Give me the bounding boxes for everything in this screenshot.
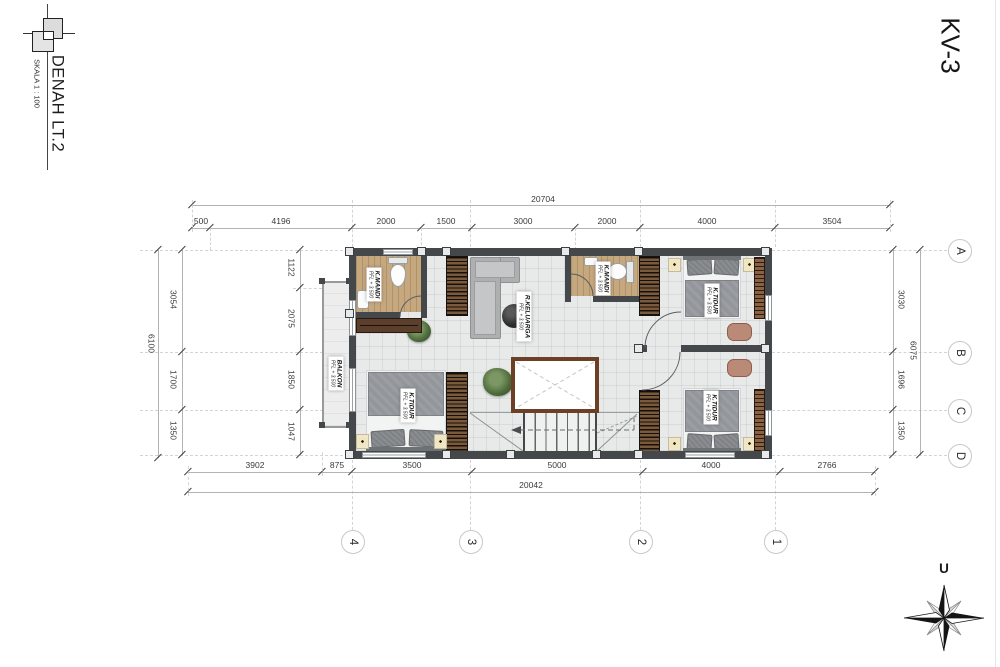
wall-bath-mid-side (565, 256, 571, 296)
gridline-col3-top (470, 200, 471, 247)
room-label-bed-left: K.TIDURPFL + 3.500 (401, 384, 416, 428)
gridline-col4-top (352, 200, 353, 247)
gridline-col2-top (640, 200, 641, 247)
floorplan-sheet: DENAH LT.2 SKALA 1 : 100 KV-3 20704 500 … (0, 0, 1000, 667)
sheet-scale: SKALA 1 : 100 (33, 54, 42, 114)
lamp (747, 262, 752, 267)
room-name: K.TIDUR (710, 394, 718, 421)
grid-bubble-C: C (948, 399, 972, 423)
toilet-bowl (608, 263, 627, 280)
grid-label: C (954, 407, 966, 415)
room-label-balcony: BALKONPFL + 3.500 (329, 352, 344, 396)
window (765, 410, 772, 436)
wardrobe-hatch (446, 256, 468, 316)
lamp (672, 441, 677, 446)
stair-treads (523, 413, 597, 452)
gridline-rowC-left (140, 410, 348, 411)
dim-right-seg: 1696 (897, 363, 906, 397)
dim-bottom-seg: 3902 (235, 461, 275, 470)
sheet-edge-line (995, 0, 996, 667)
desk (754, 389, 765, 451)
dim-bottom-seg: 875 (317, 461, 357, 470)
gridline-col2-bottom (640, 460, 641, 530)
wardrobe-rod (360, 325, 418, 326)
room-name: R.KELUARGA (523, 295, 531, 338)
room-level: PFL + 3.500 (402, 392, 408, 419)
column-post (442, 247, 451, 256)
lamp (360, 439, 365, 444)
dim-right-total: 6075 (909, 334, 918, 368)
ext-stub (575, 228, 576, 250)
room-name: K.TIDUR (407, 392, 415, 419)
window (362, 452, 426, 458)
room-level: PFL + 3.500 (368, 271, 374, 299)
chair (727, 323, 752, 341)
pillow (370, 429, 405, 448)
dim-left-inner-seg: 1122 (287, 251, 296, 285)
dim-left-total: 6100 (147, 327, 156, 361)
balcony-post (319, 422, 325, 428)
column-post (634, 450, 643, 459)
lamp (438, 439, 443, 444)
room-label-bed-bot-right: K.TIDURPFL + 3.500 (704, 386, 719, 430)
dim-bottom-seg: 2766 (807, 461, 847, 470)
column-post (345, 247, 354, 256)
grid-bubble-A: A (948, 239, 972, 263)
compass-rose (904, 585, 984, 651)
ext-stub (192, 200, 193, 232)
dim-right-seg: 3030 (897, 283, 906, 317)
wardrobe-hatch (446, 372, 468, 452)
room-name: K.MANDI (373, 271, 381, 299)
dim-bottom-total: 20042 (511, 481, 551, 490)
pillow (713, 258, 739, 276)
room-name: K.MANDI (602, 265, 610, 293)
dim-left-inner-seg: 2075 (287, 302, 296, 336)
ext-stub (188, 466, 189, 496)
room-label-bed-top-right: K.TIDURPFL + 3.500 (705, 279, 720, 323)
grid-label: B (954, 349, 966, 357)
lamp (747, 441, 752, 446)
dim-top-seg: 500 (181, 217, 221, 226)
column-post (761, 450, 770, 459)
grid-bubble-B: B (948, 341, 972, 365)
toilet-tank (626, 261, 634, 283)
dim-top-seg: 1500 (426, 217, 466, 226)
north-label: U (936, 561, 952, 576)
grid-label: 2 (635, 539, 647, 545)
gridline-rowD-right (772, 455, 947, 456)
gridline-col1-bottom (775, 460, 776, 530)
column-post (592, 450, 601, 459)
lamp (672, 262, 677, 267)
grid-bubble-D: D (948, 444, 972, 468)
wardrobe-hatch (639, 256, 660, 316)
dim-top-total: 20704 (523, 195, 563, 204)
dim-top-seg: 2000 (587, 217, 627, 226)
column-post (634, 247, 643, 256)
sofa-cushion (475, 261, 515, 278)
logo-square-overlap (43, 31, 54, 40)
room-label-bath-left: K.MANDIPFL + 3.500 (367, 263, 382, 307)
dim-top-seg: 3000 (503, 217, 543, 226)
dim-left-seg: 3054 (169, 283, 178, 317)
column-post (634, 344, 643, 353)
sofa-cushion (474, 281, 496, 335)
gridline-rowA-left (140, 250, 348, 251)
grid-label: D (954, 452, 966, 460)
ext-stub (875, 466, 876, 496)
wall-bath-left-bottom (356, 312, 400, 318)
dim-line-left-total (158, 250, 159, 458)
room-name: BALKON (335, 360, 343, 388)
dim-left-seg: 1350 (169, 414, 178, 448)
column-post (345, 309, 354, 318)
dim-left-inner-seg: 1850 (287, 363, 296, 397)
pillow (686, 258, 712, 276)
room-label-bath-mid: K.MANDIPFL + 3.500 (596, 257, 611, 301)
wall-rowB-b (681, 345, 772, 352)
dim-right-seg: 1350 (897, 414, 906, 448)
dim-bottom-seg: 3500 (392, 461, 432, 470)
room-level: PFL + 3.500 (705, 394, 711, 421)
window (383, 249, 413, 255)
dim-line-top-total (192, 205, 890, 206)
grid-label: A (954, 247, 966, 255)
dim-line-right-total (920, 250, 921, 455)
room-level: PFL + 3.500 (597, 265, 603, 293)
gridline-rowD-left (140, 455, 348, 456)
headboard (683, 256, 741, 260)
dim-left-inner-seg: 1047 (287, 415, 296, 449)
column-post (345, 450, 354, 459)
plant (483, 368, 513, 396)
grid-bubble-1: 1 (764, 530, 788, 554)
wardrobe-hatch (639, 390, 660, 452)
dim-top-seg: 4000 (687, 217, 727, 226)
dim-top-seg: 3504 (812, 217, 852, 226)
ext-stub (890, 200, 891, 232)
column-post (561, 247, 570, 256)
dim-top-seg: 4196 (261, 217, 301, 226)
room-level: PFL + 3.500 (330, 360, 336, 388)
window (765, 295, 772, 321)
room-level: PFL + 3.500 (706, 287, 712, 314)
dim-line-top-segments (192, 228, 890, 229)
ext-stub (322, 452, 323, 476)
dim-left-seg: 1700 (169, 363, 178, 397)
dim-line-bottom-segments (188, 472, 875, 473)
gridline-rowB-left (140, 352, 348, 353)
wall-left (349, 248, 356, 459)
column-post (506, 450, 515, 459)
void-opening (511, 357, 599, 413)
dim-bottom-seg: 5000 (537, 461, 577, 470)
wall-bath-mid-bottom-a (565, 296, 571, 302)
grid-bubble-2: 2 (629, 530, 653, 554)
column-post (761, 344, 770, 353)
wall-bath-left-side (421, 256, 427, 318)
chair (727, 359, 752, 377)
balcony-post (319, 278, 325, 284)
toilet-tank (388, 257, 408, 264)
sheet-title: DENAH LT.2 (48, 54, 67, 154)
grid-bubble-4: 4 (341, 530, 365, 554)
column-post (442, 450, 451, 459)
ext-stub (210, 228, 211, 250)
grid-bubble-3: 3 (459, 530, 483, 554)
grid-label: 4 (347, 539, 359, 545)
gridline-col1-top (775, 200, 776, 247)
room-label-family: R.KELUARGAPFL + 3.500 (517, 292, 532, 342)
window (685, 452, 735, 458)
desk (754, 257, 765, 319)
column-post (417, 247, 426, 256)
window (349, 300, 356, 336)
dim-line-bottom-total (188, 492, 875, 493)
room-name: K.TIDUR (711, 287, 719, 314)
sheet-code: KV-3 (935, 11, 966, 81)
dim-top-seg: 2000 (366, 217, 406, 226)
window (349, 368, 356, 412)
column-post (761, 247, 770, 256)
grid-label: 1 (770, 539, 782, 545)
dim-bottom-seg: 4000 (691, 461, 731, 470)
grid-label: 3 (465, 539, 477, 545)
